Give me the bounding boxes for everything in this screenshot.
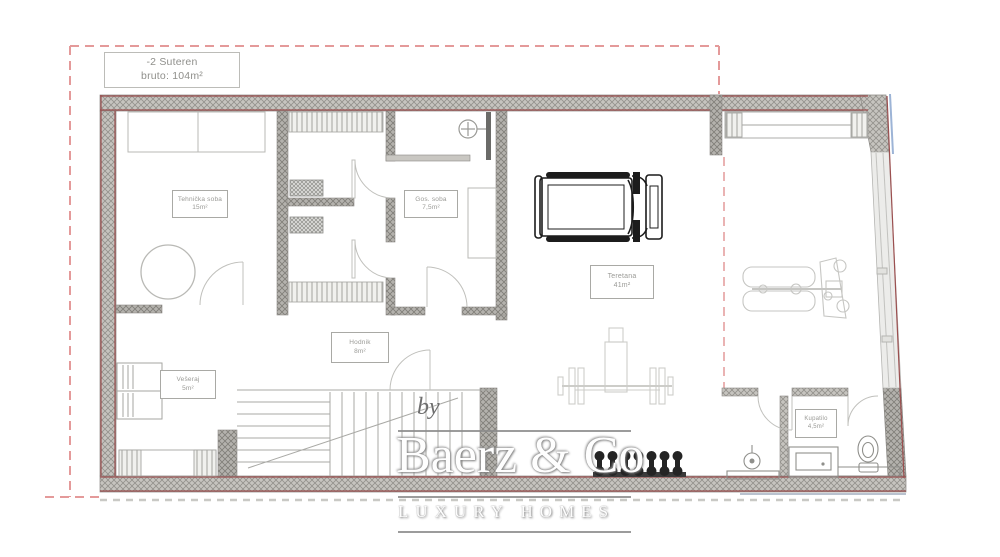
wardrobe-icon: [468, 188, 496, 258]
bench-storage-icon: [119, 450, 216, 476]
room-label-gost: Gos. soba 7,5m²: [404, 190, 458, 218]
room-name: Hodnik: [332, 339, 388, 347]
room-name: Teretana: [591, 273, 653, 282]
room-area: 4,5m²: [796, 424, 836, 432]
watermark-tagline: LUXURY HOMES: [398, 502, 634, 522]
shower-head-icon: [459, 112, 491, 160]
cabinet-icon: [128, 112, 265, 152]
room-area: 8m²: [332, 348, 388, 356]
room-label-hodnik: Hodnik 8m²: [331, 332, 389, 363]
appliance-icon: [290, 180, 323, 233]
watermark-brand: Baerz & Co: [396, 426, 636, 485]
watermark-rule-bottom: [398, 531, 631, 533]
room-label-veseraj: Vešeraj 5m²: [160, 370, 216, 399]
room-area: 5m²: [161, 385, 215, 393]
floor-plan-page: -2 Suteren bruto: 104m² Tehnička soba 15…: [0, 0, 1000, 557]
exercise-machine-icon: [743, 258, 849, 318]
room-name: Tehnička soba: [173, 196, 227, 204]
room-area: 7,5m²: [405, 204, 457, 212]
room-name: Kupatilo: [796, 416, 836, 424]
boiler-tank-icon: [141, 245, 195, 299]
room-area: 15m²: [173, 204, 227, 212]
level-name: -2 Suteren: [105, 56, 239, 70]
right-wall-window: [871, 152, 901, 388]
storage-shelf-icon: [289, 112, 383, 302]
level-label: -2 Suteren bruto: 104m²: [104, 52, 240, 88]
treadmill-icon: [535, 172, 662, 242]
watermark-by: by: [417, 394, 440, 421]
room-name: Vešeraj: [161, 376, 215, 384]
barbell-bench-icon: [558, 328, 673, 404]
wall-bench-icon: [725, 112, 868, 138]
level-area: bruto: 104m²: [105, 70, 239, 84]
room-label-teretana: Teretana 41m²: [590, 265, 654, 299]
room-label-kupatilo: Kupatilo 4,5m²: [795, 409, 837, 438]
watermark-rule-middle: [398, 496, 631, 498]
room-area: 41m²: [591, 282, 653, 291]
vanity-sink-icon: [789, 447, 838, 477]
room-name: Gos. soba: [405, 196, 457, 204]
shower-icon: [727, 445, 779, 479]
washer-dryer-icon: [117, 363, 162, 419]
room-label-tehnicka: Tehnička soba 15m²: [172, 190, 228, 218]
